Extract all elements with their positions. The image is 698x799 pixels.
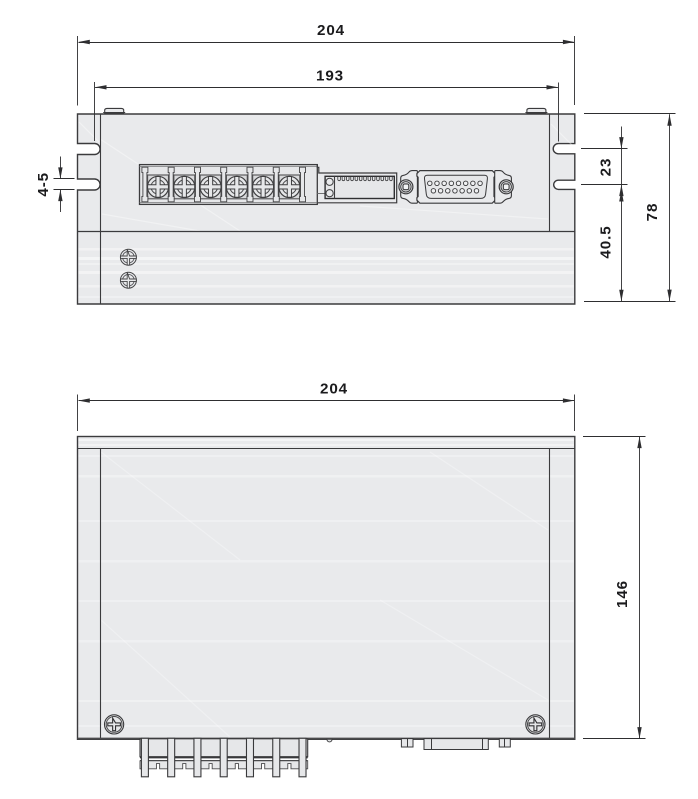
svg-text:4-5: 4-5 <box>35 172 52 197</box>
svg-text:40.5: 40.5 <box>597 225 614 258</box>
svg-text:204: 204 <box>320 381 348 398</box>
svg-text:146: 146 <box>614 580 631 608</box>
svg-text:204: 204 <box>317 22 345 39</box>
svg-text:193: 193 <box>316 68 344 85</box>
svg-text:78: 78 <box>644 203 661 222</box>
svg-text:23: 23 <box>597 158 614 177</box>
